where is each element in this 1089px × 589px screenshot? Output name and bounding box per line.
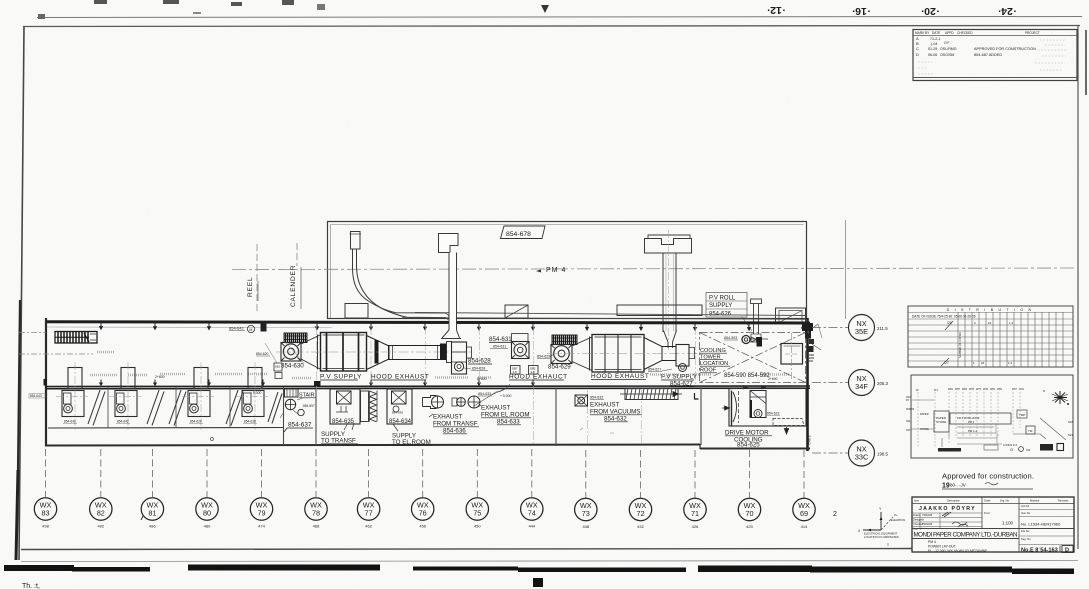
svg-text:420: 420 [746,524,753,529]
svg-text:72: 72 [636,509,644,518]
svg-text:No.E 8´54-163: No.E 8´54-163 [1021,548,1058,554]
svg-text:D I S T R I B U T I O N: D I S T R I B U T I O N [947,308,1034,312]
svg-text:N21: N21 [1068,433,1073,437]
svg-text:74: 74 [528,509,536,518]
svg-text:79/03/28: 79/03/28 [922,513,933,517]
svg-text:414: 414 [801,524,808,529]
svg-text:456: 456 [419,524,426,529]
svg-text:о: о [210,436,214,443]
svg-text:Scale: Scale [984,499,991,503]
svg-text:71: 71 [691,509,699,518]
svg-text:OY´.´: OY´.´ [944,41,953,45]
svg-text:854-632: 854-632 [590,396,603,400]
svg-text:LOCATION CO-ORDINATES: LOCATION CO-ORDINATES [864,535,899,539]
svg-text:35E: 35E [855,327,868,336]
svg-text:Approved for construction.: Approved for construction. [942,472,1034,481]
svg-text:M: M [249,328,252,332]
svg-text:TMP: TMP [1019,413,1025,417]
svg-text:+ 5.000: + 5.000 [250,391,262,395]
svg-text:462: 462 [365,524,372,529]
svg-text:426: 426 [692,524,699,529]
svg-text:MONDI PAPER COMPANY LTD.-DURBA: MONDI PAPER COMPANY LTD.-DURBAN [914,532,1018,539]
svg-text:Job No: Job No [1021,504,1030,508]
svg-text:211.5: 211.5 [877,326,888,331]
svg-text:82: 82 [97,509,105,518]
svg-text:W84: W84 [990,388,996,391]
svg-text:80-. -JV: 80-. -JV [950,483,966,488]
svg-text:06-06: 06-06 [928,53,937,57]
svg-text:From: From [984,511,990,515]
svg-text:83: 83 [41,509,49,518]
svg-text:10: 10 [988,321,992,325]
svg-text:33C: 33C [855,452,869,461]
svg-text:ELEVATION: ELEVATION [891,518,905,522]
svg-text:·16·: ·16· [852,5,871,17]
svg-text:PM 3: PM 3 [968,420,975,424]
svg-text:854-637: 854-637 [288,422,312,429]
svg-text:HOOD EXHAUST: HOOD EXHAUST [371,374,429,381]
svg-text:N18: N18 [1068,420,1073,424]
svg-text:854-642: 854-642 [117,420,129,424]
svg-text:854-643: 854-643 [64,420,76,424]
svg-text:C: C [916,46,919,51]
svg-text:444: 444 [528,524,535,529]
svg-text:·12·: ·12· [767,4,786,16]
svg-text:198.5: 198.5 [877,452,889,457]
svg-text:NUMBER OF COPIES: NUMBER OF COPIES [958,332,962,358]
svg-text:1:100: 1:100 [1002,521,1014,526]
svg-text:80: 80 [203,509,211,518]
svg-text:JAAKKO PÖYRY: JAAKKO PÖYRY [919,505,976,512]
svg-text:19: 19 [942,483,950,490]
svg-text:·20·: ·20· [921,5,940,17]
svg-text:.(-04: .(-04 [930,42,937,46]
svg-text:File No: File No [1021,529,1030,533]
svg-text:W78: W78 [969,388,975,391]
svg-text:Z+: Z+ [894,513,898,517]
svg-text:P.V SUPPLY: P.V SUPPLY [320,374,362,381]
svg-text:854-678: 854-678 [506,231,531,238]
svg-text:TM: TM [1028,429,1033,433]
svg-text:854-590 854-592: 854-590 854-592 [724,373,770,379]
svg-text:474: 474 [258,524,265,529]
svg-text:PAPER: PAPER [920,412,929,416]
svg-text:Material: Material [1030,499,1040,503]
svg-text:34F: 34F [855,382,868,391]
svg-text:Drawn: Drawn [913,513,921,517]
svg-text:PROJECT: PROJECT [1025,31,1040,35]
svg-text:69: 69 [800,509,808,518]
svg-text:854-697: 854-697 [303,404,315,408]
svg-text:77: 77 [365,509,373,518]
svg-text:SUPPLY: SUPPLY [709,303,732,309]
svg-text:P.V ROLL: P.V ROLL [709,296,736,302]
svg-text:854-620: 854-620 [190,420,202,424]
svg-text:854-638: 854-638 [244,420,256,424]
svg-text:854-634: 854-634 [389,419,412,425]
svg-text:854-628: 854-628 [468,358,491,365]
svg-text:W82: W82 [997,388,1003,391]
svg-text:450: 450 [474,524,481,529]
svg-text:854-629: 854-629 [537,355,550,359]
svg-text:854-620: 854-620 [256,352,269,356]
svg-text:+ 5.000: + 5.000 [500,394,512,398]
svg-text:W:L: W:L [934,389,939,392]
svg-text:Description: Description [947,499,961,503]
svg-text:REEL: REEL [247,277,254,297]
svg-text:RY: RY [906,399,910,402]
svg-text:/27: /27 [944,361,949,365]
svg-text:73: 73 [582,509,590,518]
svg-text:854-627: 854-627 [648,368,661,372]
svg-text:G: G [1010,447,1013,452]
svg-text:PM 1-2: PM 1-2 [968,429,977,433]
svg-text:71-2-1: 71-2-1 [930,37,940,41]
svg-text:OSO/SM: OSO/SM [940,53,954,57]
svg-text:OSL/RMG: OSL/RMG [940,47,957,51]
svg-text:432: 432 [637,524,644,529]
svg-text:PM 4: PM 4 [546,267,566,274]
svg-text:STORE: STORE [936,420,946,424]
svg-text:W57: W57 [1012,388,1018,391]
svg-text:EXHAUST: EXHAUST [481,405,510,412]
svg-text:498: 498 [42,524,49,529]
svg-text:No. L1534-HER17960: No. L1534-HER17960 [1021,522,1061,527]
svg-text:8+600: 8+600 [477,377,487,381]
svg-text:DATE: DATE [932,31,940,35]
svg-text:DB1: DB1 [275,365,281,369]
svg-text:W49: W49 [983,388,989,391]
svg-text:854-593: 854-593 [724,336,737,340]
svg-text:ELECTRICAL EQUIPMENT: ELECTRICAL EQUIPMENT [864,532,898,536]
svg-text:854-623: 854-623 [767,412,780,416]
svg-text:DATE OF ISSUE 75/4-25 80: 05: DATE OF ISSUE 75/4-25 80: 05 06 06-26-06 [912,315,976,319]
svg-text:STORE: STORE [920,427,929,431]
svg-text:HOOD EXHAUST: HOOD EXHAUST [591,373,649,380]
svg-text:79/03/28: 79/03/28 [922,522,933,526]
svg-text:APPROVED FOR CONSTRUCTION: APPROVED FOR CONSTRUCTION [974,47,1036,51]
svg-text:75: 75 [473,509,481,518]
svg-text:854-636: 854-636 [392,411,403,415]
svg-text:854-631: 854-631 [493,345,506,349]
svg-text:Th. :t,: Th. :t, [22,583,40,589]
svg-text:480: 480 [204,524,211,529]
svg-text:´: ´ [922,518,923,522]
svg-text:79: 79 [257,509,265,518]
svg-text:POWER LAY-OUT: POWER LAY-OUT [928,545,956,549]
svg-text:W75.: W75. [976,388,982,391]
svg-text:81: 81 [148,509,156,518]
svg-text:2: 2 [833,511,837,518]
svg-text:CALENDER: CALENDER [290,265,297,307]
svg-text:24: 24 [981,361,985,365]
svg-text:D: D [916,52,919,57]
svg-text:Drg. No: Drg. No [1000,499,1009,503]
svg-text:854-630: 854-630 [281,363,304,370]
svg-text:W:.: W:. [916,389,920,392]
svg-text:Remarks: Remarks [1058,499,1069,503]
svg-text:PM 4: PM 4 [928,540,936,544]
svg-text:1 2: 1 2 [1008,361,1013,365]
svg-text:N21: N21 [906,420,911,423]
svg-text:N27: N27 [906,429,911,432]
svg-text:W41: W41 [1019,388,1025,391]
svg-text:CABLE: CABLE [808,435,812,445]
svg-text:EXHAUST: EXHAUST [433,414,462,421]
svg-text:LOODS D´A: LOODS D´A [1003,443,1018,447]
svg-text:W87: W87 [955,388,961,391]
svg-text:854-642: 854-642 [229,326,244,331]
svg-text:492: 492 [97,524,104,529]
svg-text:854-629: 854-629 [548,364,571,371]
svg-text:70: 70 [745,509,753,518]
svg-text:EXHAUST: EXHAUST [590,402,619,409]
svg-text:854-643: 854-643 [30,394,42,398]
svg-text:Item No: Item No [1021,511,1031,515]
svg-text:W82: W82 [948,388,954,391]
svg-text:01-29: 01-29 [928,47,937,51]
svg-text:438: 438 [582,524,589,529]
svg-text:205.3: 205.3 [877,381,889,386]
svg-text:PM 4 WX83–WX69: PM 4 WX83–WX69 [957,416,980,420]
svg-text:APPD: APPD [945,31,954,35]
svg-text:76: 76 [419,509,427,518]
svg-text:N: N [1043,389,1045,393]
svg-text:·24·: ·24· [998,5,1017,17]
svg-text:EL. -12.000, WX 69-WX 83: EL. -12.000, WX 69-WX 83 MEZANINE [928,549,988,553]
svg-text:1 2: 1 2 [1009,321,1014,325]
svg-text:468: 468 [313,524,320,529]
svg-text:W82: W82 [962,388,968,391]
svg-text:Neg. No: Neg. No [1021,537,1031,541]
svg-text:D: D [1065,548,1069,554]
svg-text:854-628: 854-628 [472,367,485,371]
svg-text:486: 486 [149,524,156,529]
svg-text:78: 78 [312,509,320,518]
svg-text:854-635: 854-635 [332,419,355,425]
svg-text:MARK: MARK [915,31,925,35]
svg-text:854-687 ADDED: 854-687 ADDED [974,53,1002,57]
svg-text:Item: Item [914,499,919,503]
svg-text:HOOD EXHAUСT: HOOD EXHAUСT [509,374,568,381]
svg-text:2+600: 2+600 [155,375,165,379]
svg-text:854-633: 854-633 [478,392,491,396]
svg-text:CHECKED: CHECKED [957,31,973,35]
